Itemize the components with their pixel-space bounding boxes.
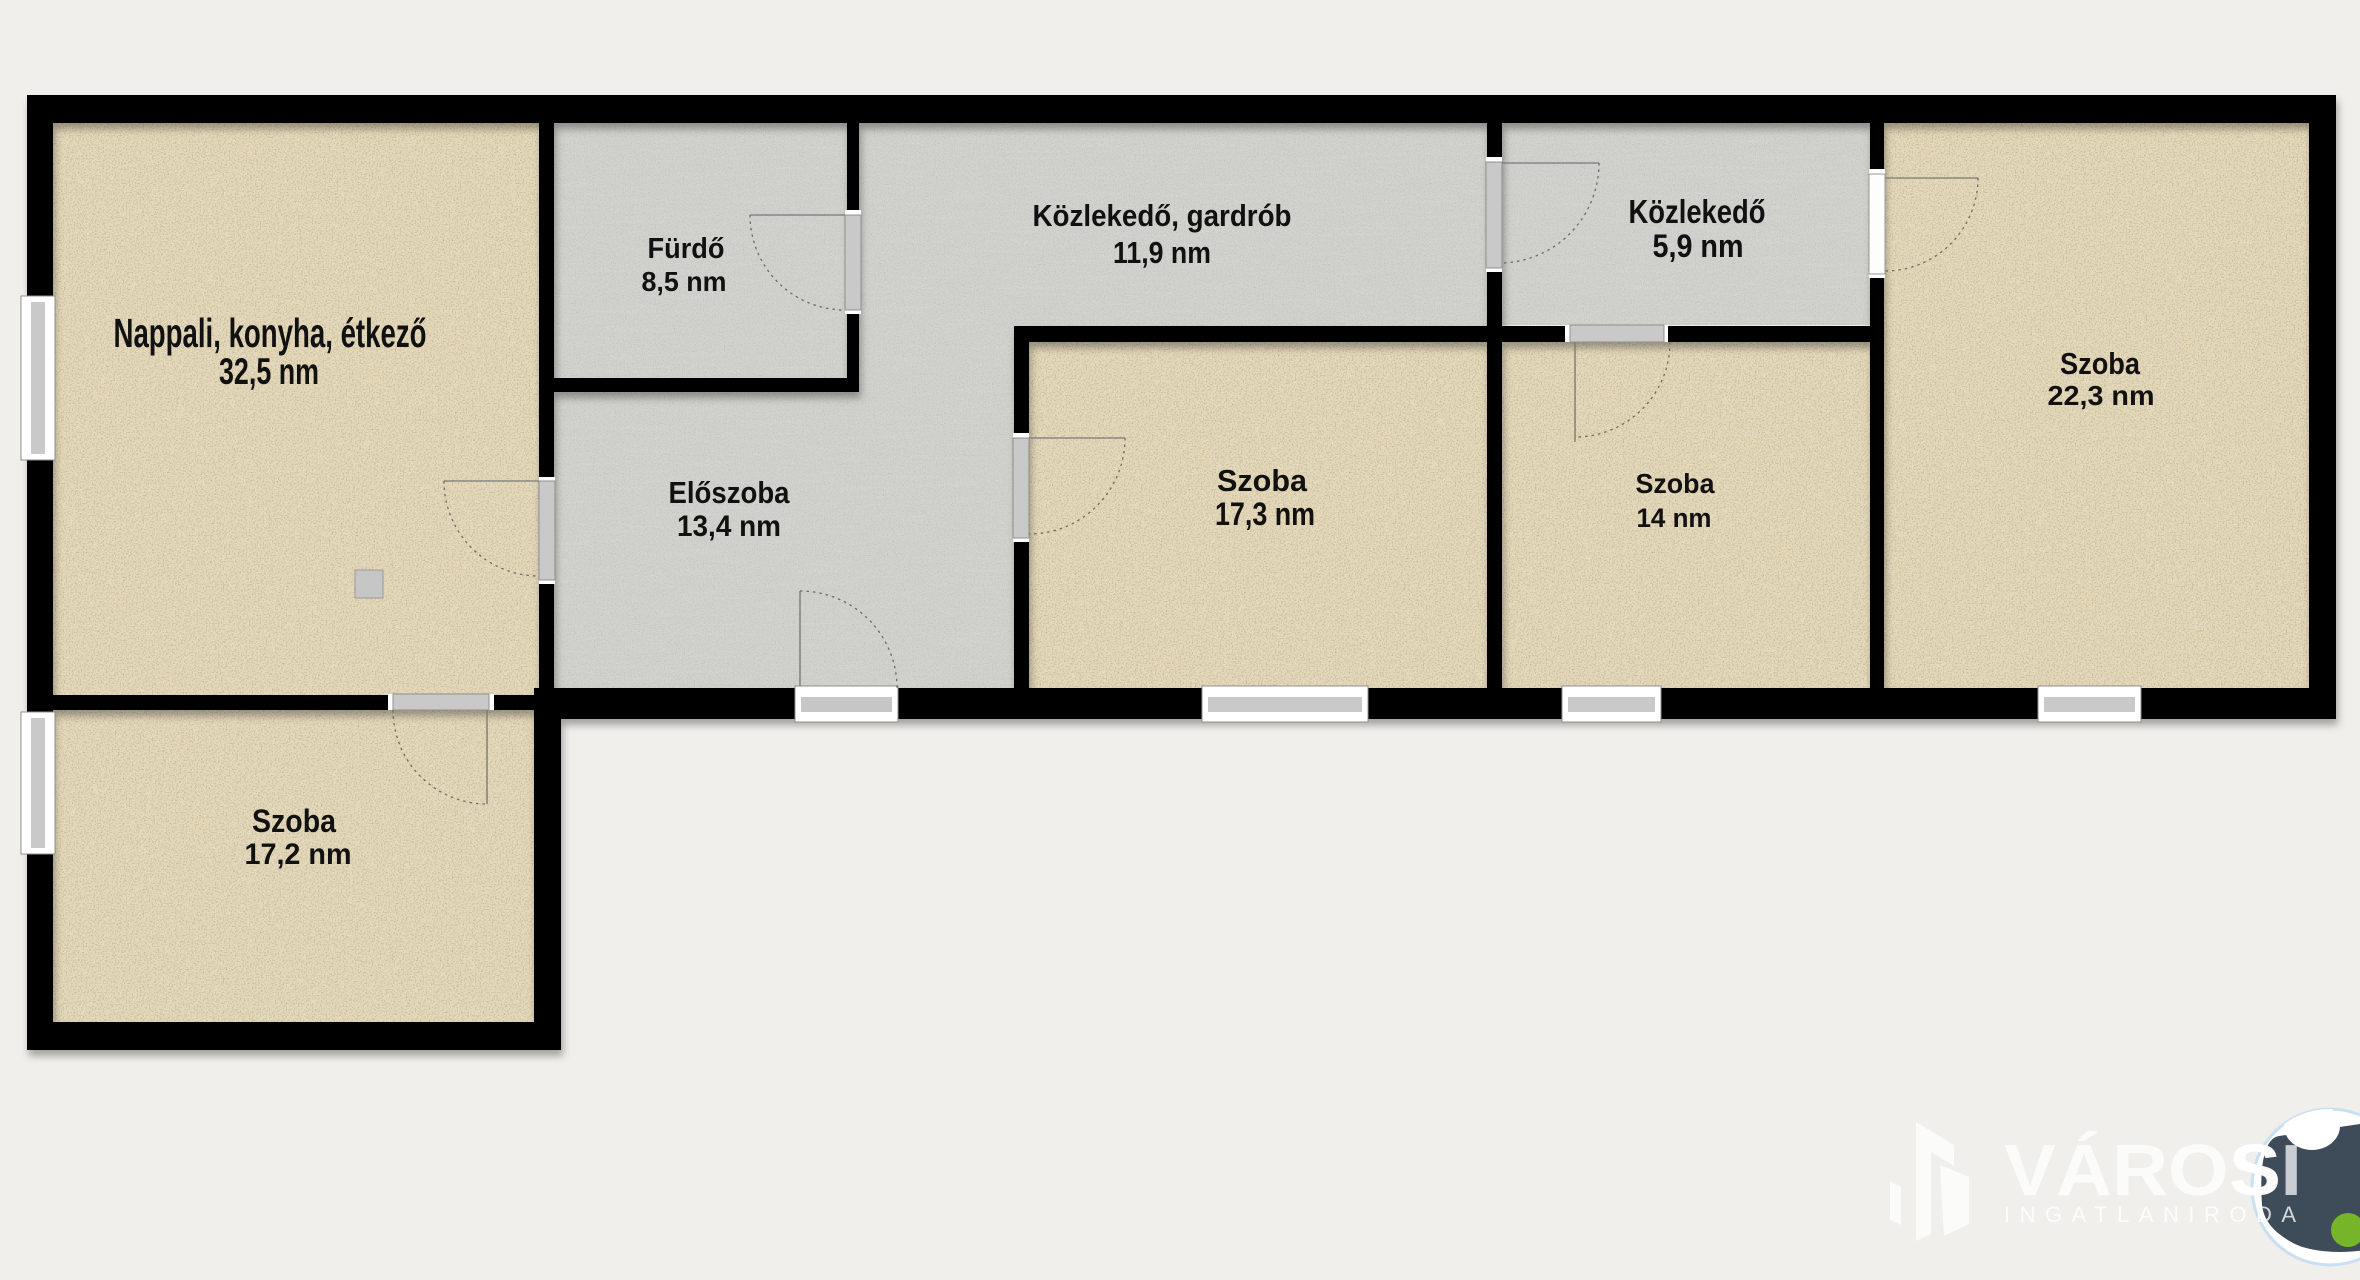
svg-text:8,5 nm: 8,5 nm [642,266,727,297]
svg-text:Szoba: Szoba [252,803,336,839]
svg-text:Szoba: Szoba [2060,346,2141,381]
svg-text:17,3 nm: 17,3 nm [1215,496,1315,532]
svg-text:17,2 nm: 17,2 nm [245,838,352,871]
svg-text:14 nm: 14 nm [1637,503,1712,533]
svg-text:22,3 nm: 22,3 nm [2048,380,2155,411]
svg-text:13,4 nm: 13,4 nm [677,510,781,543]
svg-text:Nappali, konyha, étkező: Nappali, konyha, étkező [114,310,427,356]
svg-text:Fürdő: Fürdő [648,233,725,265]
svg-text:Szoba: Szoba [1636,468,1715,499]
svg-text:5,9 nm: 5,9 nm [1653,228,1744,264]
svg-text:Szoba: Szoba [1217,463,1308,498]
svg-text:11,9 nm: 11,9 nm [1113,235,1211,270]
svg-text:S: S [2230,1131,2281,1211]
svg-text:32,5 nm: 32,5 nm [219,351,319,392]
svg-text:Közlekedő, gardrób: Közlekedő, gardrób [1033,198,1292,233]
svg-text:Előszoba: Előszoba [669,475,791,510]
svg-text:Közlekedő: Közlekedő [1629,193,1766,230]
